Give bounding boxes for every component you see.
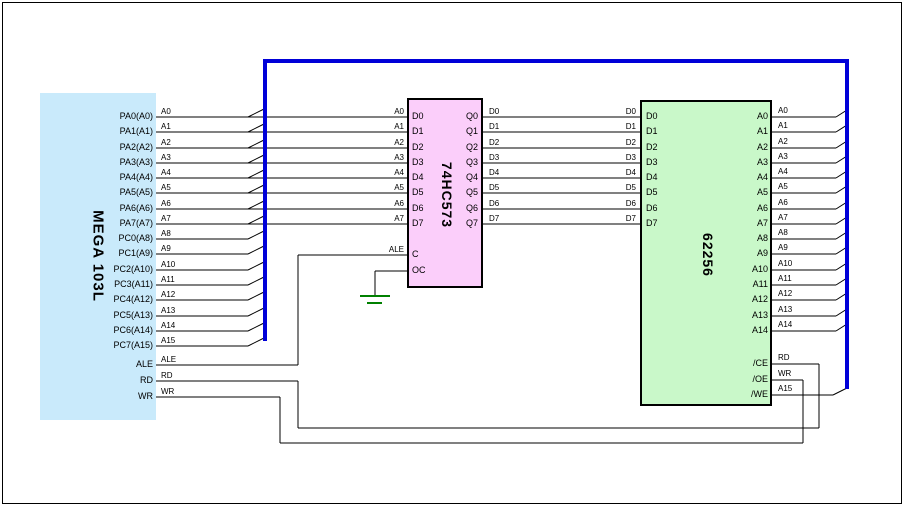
wire-label: A4 bbox=[161, 168, 171, 177]
wire-label: A8 bbox=[161, 229, 171, 238]
wire-label: A1 bbox=[161, 122, 171, 131]
pin-name-mcu: PC2(A10) bbox=[113, 264, 153, 275]
pin-name-ram: A1 bbox=[757, 126, 768, 137]
wire-label: A7 bbox=[394, 214, 404, 223]
wire-label: A9 bbox=[778, 243, 788, 252]
pin-name-ram: A4 bbox=[757, 172, 768, 183]
bus-tap bbox=[248, 308, 264, 316]
wire-label: A14 bbox=[161, 321, 175, 330]
pin-name-mcu: PC3(A11) bbox=[114, 279, 153, 290]
pin-name-ram: A12 bbox=[752, 294, 768, 305]
wire-label: A7 bbox=[161, 214, 171, 223]
wire-label: D6 bbox=[489, 199, 499, 208]
pin-name-mcu: PA3(A3) bbox=[120, 157, 153, 168]
pin-name-ram: A5 bbox=[757, 187, 768, 198]
wire-label: A2 bbox=[778, 137, 788, 146]
wire-label: D3 bbox=[489, 153, 499, 162]
pin-name-ram: A14 bbox=[752, 325, 768, 336]
wire-label: RD bbox=[778, 353, 790, 362]
wire-label: A10 bbox=[778, 259, 792, 268]
pin-name-ram: /WE bbox=[751, 389, 768, 400]
pin-name-ram: A6 bbox=[757, 203, 768, 214]
wire-label: A1 bbox=[778, 121, 788, 130]
pin-name-ram: A0 bbox=[757, 111, 768, 122]
wire-label: WR bbox=[161, 387, 174, 396]
wire-label: D2 bbox=[626, 138, 636, 147]
wire-label: A1 bbox=[394, 122, 404, 131]
pin-name-latch: Q3 bbox=[466, 157, 478, 168]
wire-label: WR bbox=[778, 369, 791, 378]
pin-name-ram: D4 bbox=[646, 172, 658, 183]
wire-label: A6 bbox=[161, 199, 171, 208]
wire-label: A9 bbox=[161, 244, 171, 253]
wire-label: D7 bbox=[489, 214, 499, 223]
wire-label: A0 bbox=[394, 107, 404, 116]
wire-label: A3 bbox=[161, 153, 171, 162]
wire-label: A3 bbox=[778, 152, 788, 161]
pin-name-latch: Q2 bbox=[466, 142, 478, 153]
pin-name-ram: D7 bbox=[646, 218, 658, 229]
bus-tap bbox=[248, 323, 264, 331]
bus-tap bbox=[248, 277, 264, 285]
wire-label: A5 bbox=[394, 183, 404, 192]
pin-name-ram: D6 bbox=[646, 203, 658, 214]
pin-name-ram: /OE bbox=[752, 374, 768, 385]
bus-tap bbox=[248, 292, 264, 300]
wire-label: D4 bbox=[489, 168, 499, 177]
wire-label: A12 bbox=[161, 290, 175, 299]
pin-name-ram: A7 bbox=[757, 218, 768, 229]
wire-label: ALE bbox=[161, 355, 176, 364]
pin-name-ram: A13 bbox=[752, 310, 768, 321]
pin-name-ram: D5 bbox=[646, 187, 658, 198]
bus-tap bbox=[833, 388, 847, 395]
bus-tap bbox=[248, 262, 264, 270]
pin-name-latch: Q6 bbox=[466, 203, 478, 214]
wire-label: A11 bbox=[778, 274, 792, 283]
wire-label: A15 bbox=[778, 384, 792, 393]
pin-name-mcu: PA7(A7) bbox=[120, 218, 153, 229]
pin-name-ram: D2 bbox=[646, 142, 658, 153]
wire-label: A13 bbox=[778, 305, 792, 314]
pin-name-mcu: PC5(A13) bbox=[113, 310, 153, 321]
pin-name-mcu: PC4(A12) bbox=[113, 294, 153, 305]
pin-name-ram: A11 bbox=[753, 279, 768, 290]
pin-name-mcu: PA6(A6) bbox=[120, 203, 153, 214]
wire-label: A13 bbox=[161, 306, 175, 315]
wire-label: A15 bbox=[161, 336, 175, 345]
wire-label: A7 bbox=[778, 213, 788, 222]
wire-label: D0 bbox=[489, 107, 499, 116]
wire-label: A2 bbox=[161, 138, 171, 147]
pin-name-mcu: RD bbox=[140, 375, 153, 386]
bus-tap bbox=[248, 201, 264, 209]
pin-name-ram: A9 bbox=[757, 248, 768, 259]
pin-name-latch: Q1 bbox=[466, 126, 478, 137]
pin-name-ram: D0 bbox=[646, 111, 658, 122]
pin-name-latch: Q5 bbox=[466, 187, 478, 198]
schematic-canvas: MEGA 103L 74HC573 62256 PA0(A0)PA1(A1)PA… bbox=[0, 0, 905, 507]
wire-label: A0 bbox=[161, 107, 171, 116]
wire-label: D7 bbox=[626, 214, 636, 223]
pin-name-ram: A2 bbox=[757, 142, 768, 153]
pin-name-mcu: PC6(A14) bbox=[113, 325, 153, 336]
wire-label: A5 bbox=[161, 183, 171, 192]
pin-name-latch: Q7 bbox=[466, 218, 478, 229]
bus-tap bbox=[248, 216, 264, 224]
wire-label: A4 bbox=[394, 168, 404, 177]
wire-label: A11 bbox=[161, 275, 175, 284]
bus-tap bbox=[248, 246, 264, 254]
bus-tap bbox=[248, 231, 264, 239]
wire-label: A6 bbox=[778, 198, 788, 207]
pin-name-ram: A10 bbox=[752, 264, 768, 275]
pin-name-latch: D4 bbox=[412, 172, 424, 183]
pin-name-mcu: PA4(A4) bbox=[120, 172, 153, 183]
wire-label: ALE bbox=[389, 245, 404, 254]
pin-name-mcu: ALE bbox=[136, 359, 153, 370]
wire-label: D1 bbox=[626, 122, 636, 131]
pin-name-latch: D7 bbox=[412, 218, 424, 229]
wire-label: A6 bbox=[394, 199, 404, 208]
wire-label: A12 bbox=[778, 289, 792, 298]
wire-label: A0 bbox=[778, 106, 788, 115]
pin-name-latch: Q0 bbox=[466, 111, 478, 122]
pin-name-ram: /CE bbox=[753, 358, 768, 369]
bus-tap bbox=[248, 109, 264, 117]
pin-name-latch: D0 bbox=[412, 111, 424, 122]
wire-label: D5 bbox=[626, 183, 636, 192]
bus-tap bbox=[248, 185, 264, 193]
wire-label: D1 bbox=[489, 122, 499, 131]
pin-name-latch: OC bbox=[412, 265, 426, 276]
bus-tap bbox=[248, 124, 264, 132]
pin-name-latch: D6 bbox=[412, 203, 424, 214]
pin-name-mcu: PA2(A2) bbox=[120, 142, 153, 153]
wire-label: RD bbox=[161, 371, 173, 380]
pin-name-mcu: PC0(A8) bbox=[118, 233, 153, 244]
pin-name-ram: D3 bbox=[646, 157, 658, 168]
wire-label: A2 bbox=[394, 138, 404, 147]
pin-name-latch: D5 bbox=[412, 187, 424, 198]
wire-label: D5 bbox=[489, 183, 499, 192]
pin-name-ram: A8 bbox=[757, 233, 768, 244]
pin-name-latch: D3 bbox=[412, 157, 424, 168]
pin-name-latch: C bbox=[412, 249, 419, 260]
pin-name-ram: D1 bbox=[646, 126, 658, 137]
pin-name-mcu: WR bbox=[138, 391, 153, 402]
wire-label: D4 bbox=[626, 168, 636, 177]
wire-label: D2 bbox=[489, 138, 499, 147]
pin-name-mcu: PA0(A0) bbox=[120, 111, 153, 122]
pin-name-latch: Q4 bbox=[466, 172, 478, 183]
wire-label: D0 bbox=[626, 107, 636, 116]
pin-name-mcu: PC1(A9) bbox=[118, 248, 153, 259]
wire-label: D6 bbox=[626, 199, 636, 208]
bus-tap bbox=[248, 170, 264, 178]
pin-name-ram: A3 bbox=[757, 157, 768, 168]
bus-tap bbox=[248, 140, 264, 148]
pin-name-latch: D2 bbox=[412, 142, 424, 153]
wire-label: A14 bbox=[778, 320, 792, 329]
pin-name-latch: D1 bbox=[412, 126, 424, 137]
pin-name-mcu: PA5(A5) bbox=[120, 187, 153, 198]
bus-tap bbox=[248, 155, 264, 163]
wire-label: A10 bbox=[161, 260, 175, 269]
wire-label: A5 bbox=[778, 182, 788, 191]
wire-label: A3 bbox=[394, 153, 404, 162]
pin-name-mcu: PA1(A1) bbox=[120, 126, 153, 137]
bus-tap bbox=[248, 338, 264, 346]
wire-label: D3 bbox=[626, 153, 636, 162]
wire-label: A8 bbox=[778, 228, 788, 237]
wire-label: A4 bbox=[778, 167, 788, 176]
pin-name-mcu: PC7(A15) bbox=[113, 340, 153, 351]
